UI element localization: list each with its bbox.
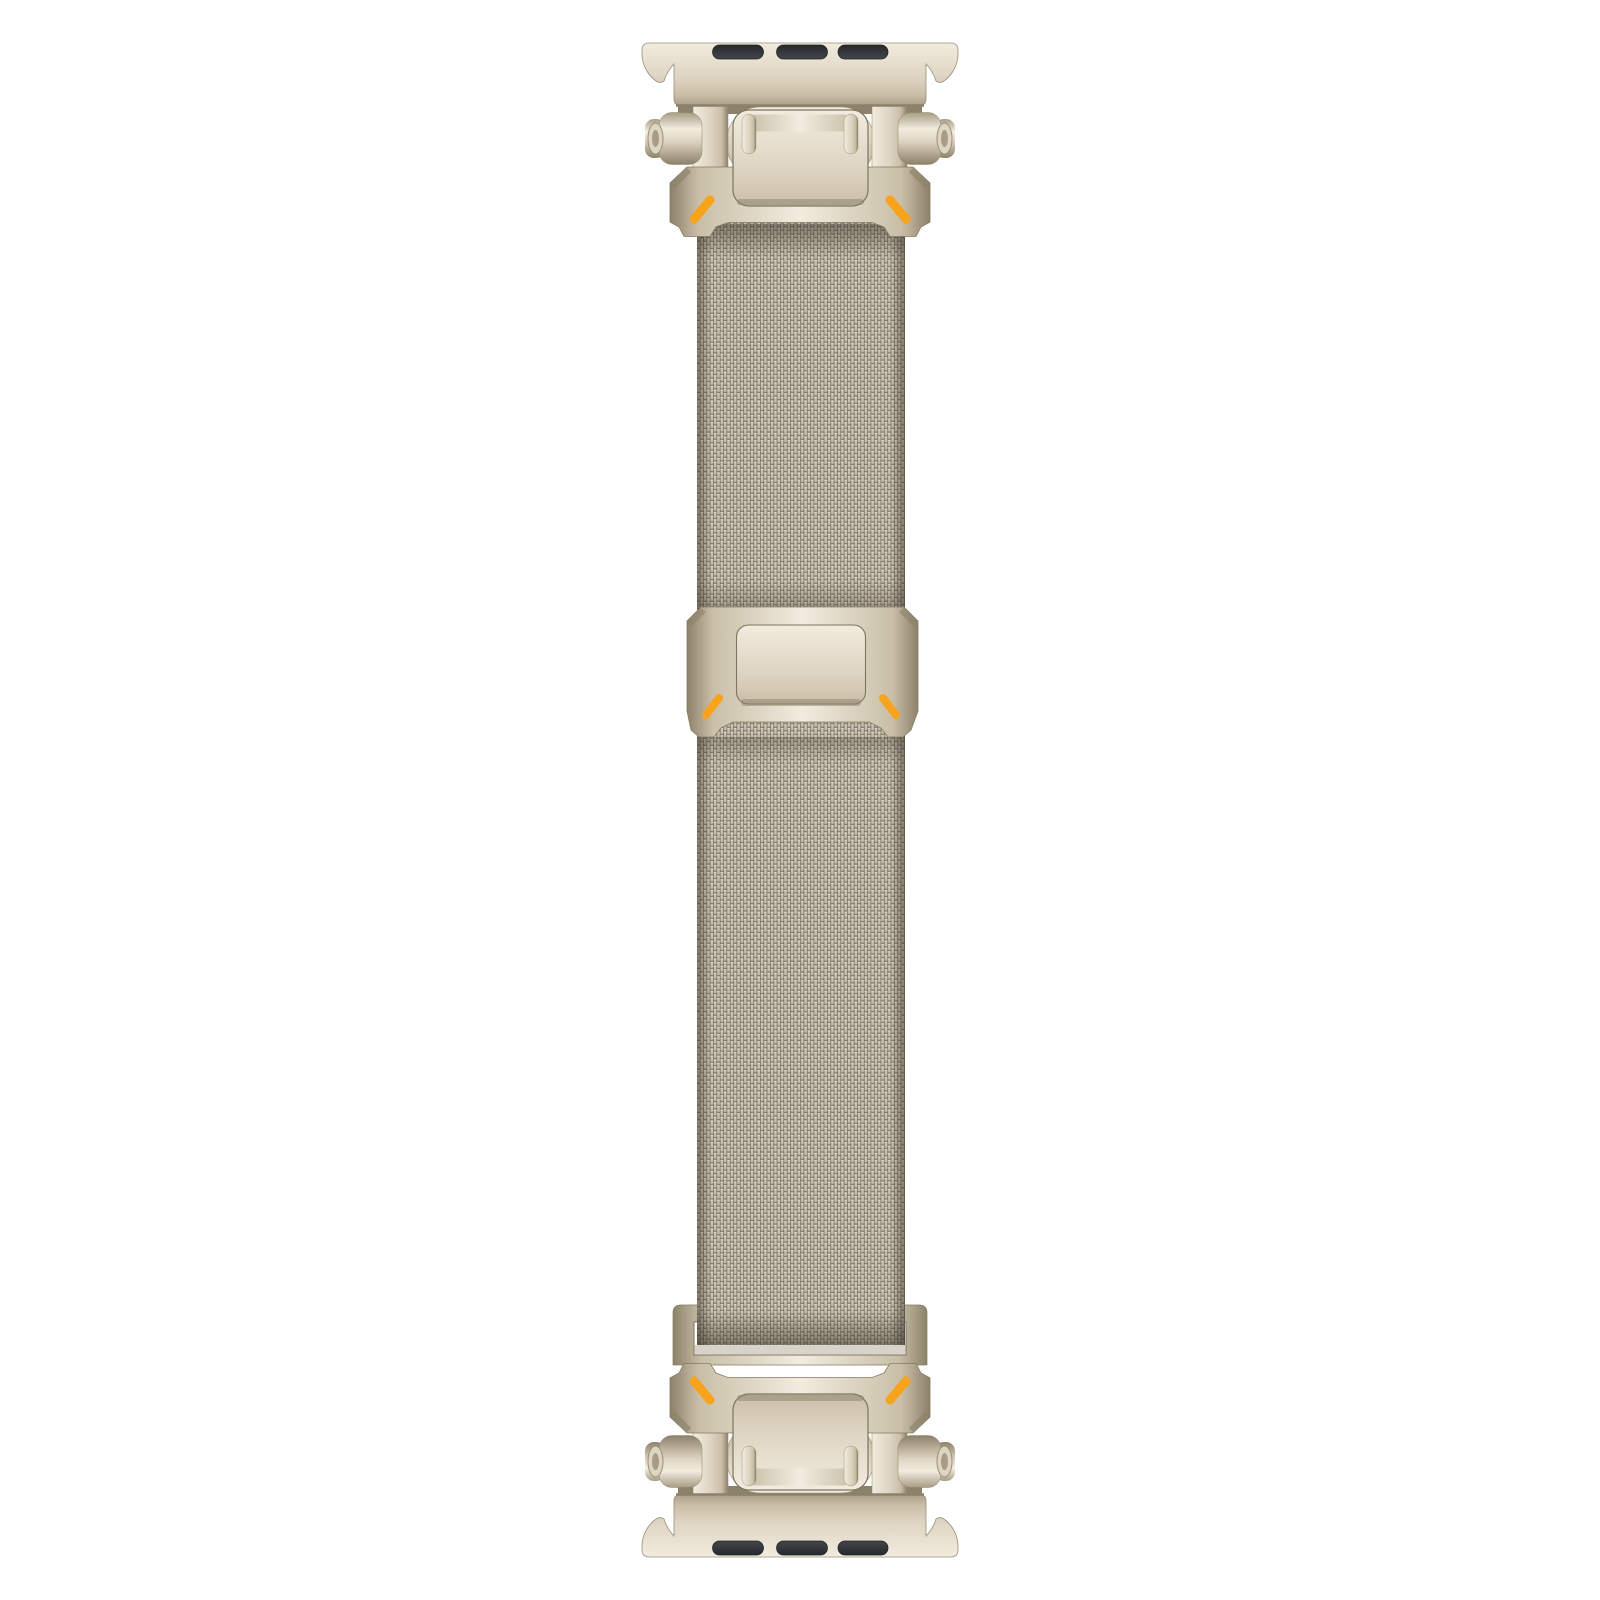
cover-plate-post-left — [742, 114, 756, 154]
mesh-edge-shading — [697, 210, 905, 1345]
lug-assembly-top — [642, 43, 958, 237]
mesh-shadow-under-top-bracket — [697, 224, 905, 258]
watch-band-illustration — [0, 0, 1600, 1600]
spring-bar-slot — [777, 45, 828, 59]
slide-clasp — [687, 607, 918, 737]
clasp-raised-plate — [737, 625, 866, 704]
hinge-screw-cap-right — [898, 113, 955, 165]
clasp-plate-shadow — [741, 699, 861, 706]
mesh-strap — [694, 210, 906, 1355]
spring-bar-slots — [713, 45, 889, 59]
product-photo — [0, 0, 1600, 1600]
spring-bar-slot — [713, 45, 764, 59]
hinge-screw-cap-left — [645, 113, 702, 165]
cover-plate-bar — [748, 115, 853, 132]
cover-plate-shadow — [737, 199, 864, 205]
spring-bar-slot — [838, 45, 888, 59]
lug-assembly-bottom — [642, 1364, 958, 1558]
mesh-shadow-above-clasp — [697, 580, 905, 607]
cover-plate-post-right — [844, 114, 858, 154]
frame-slot-shade — [694, 1345, 906, 1355]
mesh-shadow-at-frame — [697, 1311, 905, 1345]
mesh-shadow-below-clasp — [697, 737, 905, 763]
